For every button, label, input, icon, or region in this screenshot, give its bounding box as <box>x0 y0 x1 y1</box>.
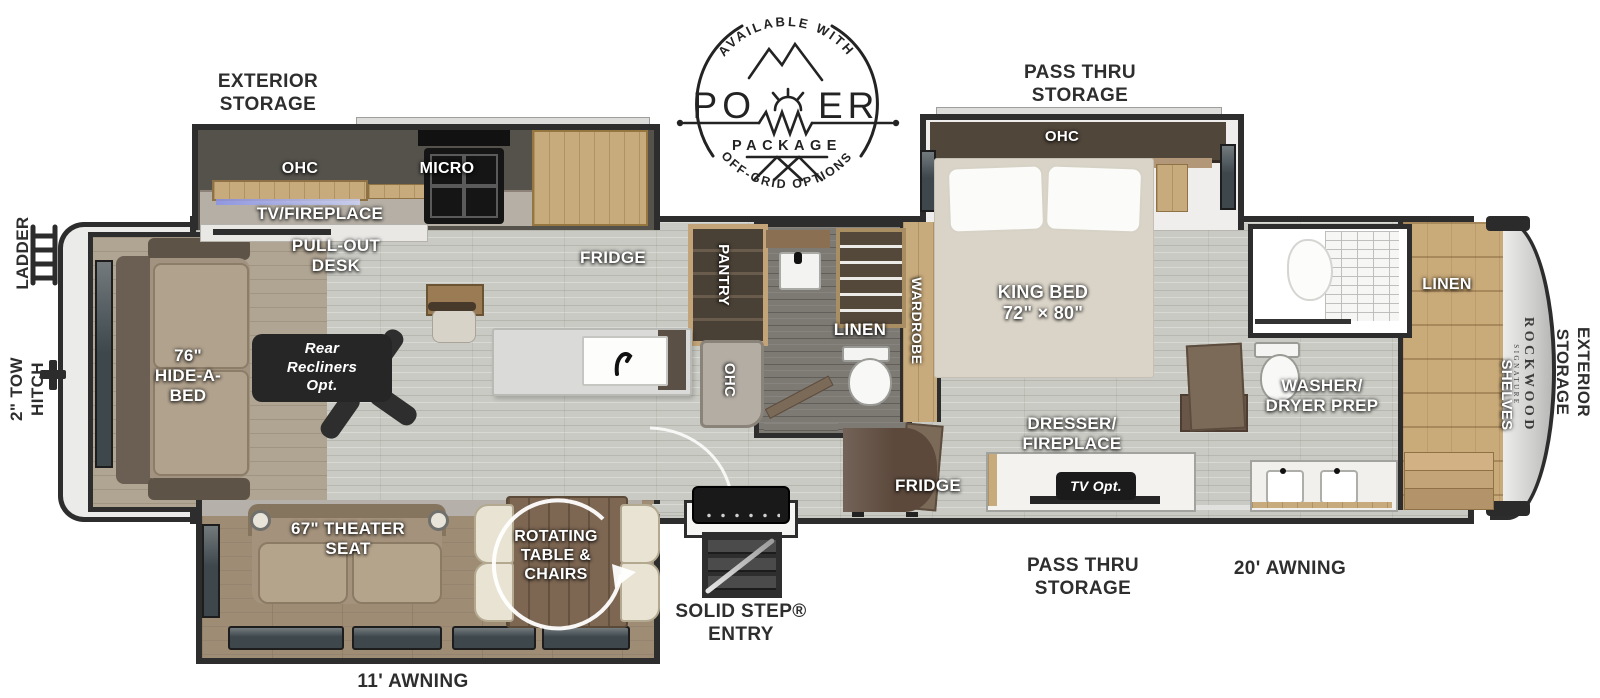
brand-sub-label: SIGNATURE <box>1512 344 1520 405</box>
ohc-lower-label: OHC <box>717 345 741 415</box>
living-window <box>202 524 220 618</box>
tv-optional-badge: TV Opt. <box>1056 472 1136 500</box>
vanity-sink <box>1320 470 1358 504</box>
logo-power-er: ER <box>818 85 879 126</box>
sofa-armrest <box>148 478 250 500</box>
linen-mid-label: LINEN <box>810 320 910 340</box>
logo-power-po: PO <box>693 85 756 126</box>
solid-step-entry-label: SOLID STEP® ENTRY <box>641 600 841 646</box>
desk-chair-back <box>428 302 476 311</box>
king-bed-label: KING BED 72" × 80" <box>943 282 1143 324</box>
brand-badge: ROCKWOOD SIGNATURE <box>1505 300 1543 450</box>
shower-glass <box>1255 319 1351 324</box>
awning-rear-label: 11' AWNING <box>313 670 513 693</box>
linen-front-label: LINEN <box>1397 276 1497 295</box>
shower-seat <box>1287 239 1333 301</box>
awning-front-label: 20' AWNING <box>1190 557 1390 580</box>
shelf-step <box>1404 452 1494 472</box>
shower <box>1248 224 1412 338</box>
ohc-bedroom-label: OHC <box>1002 128 1122 146</box>
power-package-logo: AVAILABLE WITH PO ER PACKAGE OFF-GRID OP… <box>655 2 920 207</box>
shelf-step <box>1404 488 1494 510</box>
hide-a-bed-label: 76" HIDE-A- BED <box>128 346 248 406</box>
pass-thru-storage-top-label: PASS THRU STORAGE <box>980 61 1180 107</box>
vanity-sink <box>1266 470 1304 504</box>
pillow <box>947 164 1045 233</box>
fridge-kitchen-label: FRIDGE <box>553 248 673 268</box>
faucet-dot <box>794 252 802 264</box>
shelf-step <box>1404 470 1494 490</box>
micro-label: MICRO <box>387 160 507 179</box>
logo-available-with: AVAILABLE WITH <box>715 14 858 59</box>
logo-package: PACKAGE <box>732 138 842 154</box>
bedroom-fridge <box>843 428 937 512</box>
tow-hitch-label: 2" TOW HITCH <box>7 321 49 457</box>
washer-dryer-prep-label: WASHER/ DRYER PREP <box>1222 376 1422 416</box>
tv-fireplace-label: TV/FIREPLACE <box>225 204 415 224</box>
faucet-icon <box>612 346 636 376</box>
linen-closet-mid <box>836 228 906 328</box>
rear-recliners-option-label: Rear Recliners Opt. <box>287 340 357 396</box>
logo-off-grid: OFF-GRID OPTIONS <box>718 149 855 192</box>
fridge-foot <box>852 512 864 517</box>
toilet <box>848 358 892 406</box>
bath-sink-counter <box>766 230 830 248</box>
rear-window <box>95 260 113 468</box>
rear-recliners-option-badge: Rear Recliners Opt. <box>252 334 392 402</box>
kitchen-fridge-cabinet <box>532 130 648 226</box>
range-hood <box>418 130 510 146</box>
wardrobe-label: WARDROBE <box>904 251 930 391</box>
tv-optional-label: TV Opt. <box>1070 478 1122 495</box>
fridge-foot <box>906 512 918 517</box>
rear-exterior-storage-label: EXTERIOR STORAGE <box>168 70 368 116</box>
ladder-label: LADDER <box>10 198 36 308</box>
bedroom-window <box>1220 144 1236 210</box>
living-window <box>352 626 442 650</box>
brand-label: ROCKWOOD <box>1520 317 1536 433</box>
pantry-label: PANTRY <box>710 225 736 325</box>
logo-zigzag <box>759 112 812 134</box>
griddle <box>692 486 790 524</box>
pass-thru-storage-bottom-label: PASS THRU STORAGE <box>983 554 1183 600</box>
rotating-table-label: ROTATING TABLE & CHAIRS <box>494 528 618 585</box>
double-sink-vanity <box>1250 460 1398 512</box>
pull-out-desk-label: PULL-OUT DESK <box>251 236 421 276</box>
rv-floorplan-diagram: AVAILABLE WITH PO ER PACKAGE OFF-GRID OP… <box>0 0 1600 698</box>
mountain-icon <box>749 44 822 80</box>
ohc-kitchen-label: OHC <box>240 160 360 179</box>
pillow <box>1045 164 1143 233</box>
dresser-fireplace-label: DRESSER/ FIREPLACE <box>972 414 1172 454</box>
shower-tile <box>1325 231 1399 321</box>
cap-corner <box>1486 216 1530 231</box>
desk-chair <box>432 309 476 343</box>
overhead-cabinet <box>212 180 368 201</box>
living-window <box>228 626 344 650</box>
nightstand <box>1156 164 1188 212</box>
theater-seat-label: 67" THEATER SEAT <box>258 519 438 559</box>
front-exterior-storage-label: EXTERIOR STORAGE <box>1550 310 1594 434</box>
bath-door-opening <box>764 423 838 432</box>
fridge-bedroom-label: FRIDGE <box>868 476 988 496</box>
